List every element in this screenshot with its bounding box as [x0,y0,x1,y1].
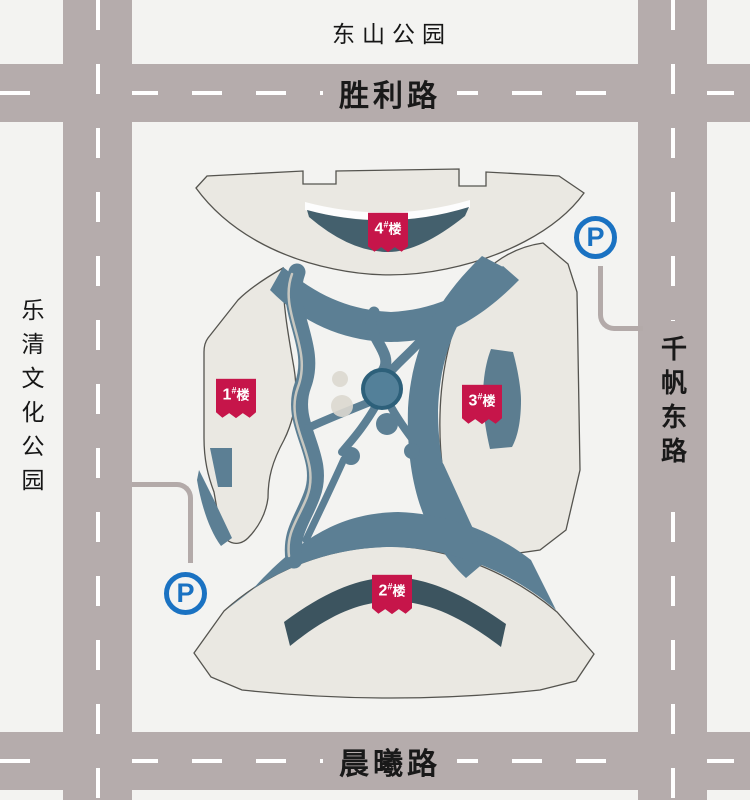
flag-suffix: 楼 [392,584,405,599]
site-plan-graphic [0,0,750,800]
flag-suffix: 楼 [482,394,495,409]
flag-suffix: 楼 [388,222,401,237]
top-park-label: 东山公园 [332,15,452,49]
parking-connector-southwest [132,482,193,563]
building-1-flag[interactable]: 1#楼 [216,379,256,421]
courtyard-nodes [331,370,420,465]
road-label-shengli: 胜利路 [323,71,457,115]
parking-symbol: P [176,580,194,607]
parking-connector-northeast [598,266,643,331]
road-label-qianfan: 千帆东路 [655,321,692,485]
building-2-flag[interactable]: 2#楼 [372,575,412,617]
central-pond [363,370,401,408]
left-park-label: 乐清文化公园 [14,298,48,502]
tree-dot [332,371,348,387]
building-4-flag[interactable]: 4#楼 [368,213,408,255]
parking-icon-southwest[interactable]: P [164,572,207,615]
parking-symbol: P [586,224,604,251]
building-3-flag[interactable]: 3#楼 [462,385,502,427]
flag-suffix: 楼 [236,388,249,403]
tree-dot [331,395,353,417]
road-label-chenxi: 晨曦路 [323,739,457,783]
parking-icon-northeast[interactable]: P [574,216,617,259]
site-map: 东山公园 乐清文化公园 胜利路 晨曦路 千帆东路 1#楼 2#楼 3#楼 4#楼… [0,0,750,800]
